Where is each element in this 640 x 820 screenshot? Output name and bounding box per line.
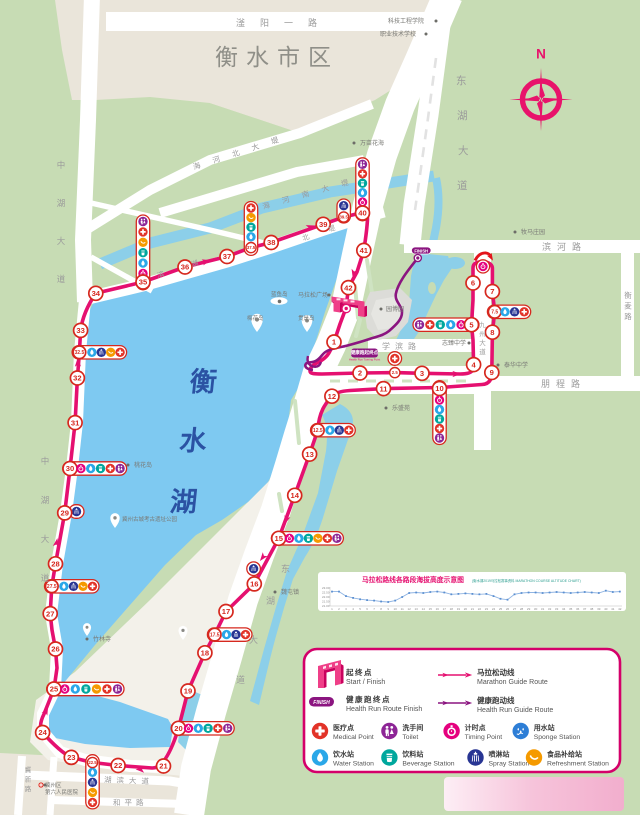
svg-text:州: 州	[479, 331, 486, 338]
svg-text:22.5: 22.5	[88, 760, 97, 765]
svg-text:14: 14	[422, 607, 426, 611]
svg-text:37.5: 37.5	[247, 245, 256, 250]
svg-text:麦: 麦	[624, 301, 632, 311]
svg-text:41: 41	[611, 607, 615, 611]
svg-text:22.00: 22.00	[322, 595, 330, 599]
svg-text:衡水市区: 衡水市区	[215, 44, 339, 70]
svg-text:3: 3	[420, 369, 424, 378]
svg-text:21: 21	[471, 607, 475, 611]
svg-text:牧马庄园: 牧马庄园	[521, 228, 545, 236]
svg-text:30: 30	[534, 607, 538, 611]
svg-text:10: 10	[435, 384, 443, 393]
svg-text:11: 11	[401, 607, 404, 611]
svg-text:衡: 衡	[188, 366, 218, 397]
svg-text:28: 28	[520, 607, 524, 611]
svg-text:23.00: 23.00	[322, 586, 330, 590]
svg-text:Health Run Guide Route: Health Run Guide Route	[477, 707, 553, 714]
svg-text:23: 23	[67, 753, 75, 762]
svg-text:17: 17	[443, 607, 447, 611]
svg-text:泰华中学: 泰华中学	[504, 361, 528, 369]
svg-text:40: 40	[604, 607, 608, 611]
svg-text:15: 15	[429, 607, 433, 611]
svg-text:34: 34	[562, 607, 566, 611]
svg-text:道: 道	[457, 179, 468, 192]
svg-text:29: 29	[527, 607, 531, 611]
svg-text:湖: 湖	[41, 495, 50, 505]
svg-text:32: 32	[73, 374, 81, 383]
svg-text:26: 26	[506, 607, 510, 611]
svg-text:38: 38	[267, 238, 275, 247]
svg-text:中: 中	[41, 456, 50, 466]
svg-text:滨河路: 滨河路	[542, 241, 587, 252]
svg-text:道: 道	[57, 274, 66, 284]
svg-text:31: 31	[541, 607, 545, 611]
svg-text:起终点: 起终点	[345, 667, 373, 677]
svg-text:新: 新	[25, 775, 32, 784]
svg-text:FINISH: FINISH	[313, 700, 330, 706]
svg-text:19: 19	[457, 607, 461, 611]
svg-text:22.50: 22.50	[322, 591, 330, 595]
svg-text:食品补给站: 食品补给站	[546, 750, 582, 759]
svg-text:贯是岛: 贯是岛	[298, 314, 315, 322]
svg-text:39: 39	[319, 220, 327, 229]
svg-text:18: 18	[450, 607, 454, 611]
svg-text:竹林寺: 竹林寺	[93, 635, 111, 643]
svg-text:37: 37	[223, 252, 231, 261]
svg-text:24: 24	[38, 728, 47, 737]
svg-text:10: 10	[394, 607, 398, 611]
svg-text:42: 42	[344, 283, 352, 292]
svg-text:25: 25	[499, 607, 503, 611]
svg-text:35: 35	[569, 607, 573, 611]
svg-text:12: 12	[328, 392, 336, 401]
svg-text:马拉松动线: 马拉松动线	[477, 667, 515, 677]
svg-text:中: 中	[57, 160, 66, 170]
svg-text:FINISH: FINISH	[414, 248, 428, 253]
svg-text:喷淋站: 喷淋站	[489, 750, 510, 759]
svg-text:大: 大	[57, 236, 66, 246]
svg-text:东: 东	[281, 563, 290, 574]
svg-text:Sponge Station: Sponge Station	[534, 734, 581, 741]
svg-text:饮料站: 饮料站	[401, 750, 423, 759]
svg-text:33: 33	[76, 326, 84, 335]
svg-text:11: 11	[379, 384, 388, 393]
svg-text:41: 41	[360, 246, 369, 255]
svg-text:湖: 湖	[457, 110, 468, 122]
svg-text:朋程路: 朋程路	[541, 378, 586, 389]
svg-text:健康跑起终点: 健康跑起终点	[351, 349, 379, 356]
svg-text:8: 8	[490, 328, 494, 337]
svg-text:Beverage Station: Beverage Station	[402, 761, 454, 768]
svg-text:25: 25	[50, 685, 59, 694]
svg-text:Water Station: Water Station	[333, 761, 374, 768]
svg-text:冀: 冀	[25, 765, 32, 774]
svg-text:18: 18	[201, 649, 209, 658]
svg-text:Spray Station: Spray Station	[489, 761, 530, 768]
svg-text:14: 14	[290, 491, 299, 500]
svg-text:Toilet: Toilet	[402, 734, 418, 741]
svg-text:路: 路	[25, 784, 32, 793]
svg-text:39: 39	[597, 607, 601, 611]
svg-text:34: 34	[92, 289, 101, 298]
svg-text:大: 大	[458, 144, 469, 157]
svg-text:22: 22	[478, 607, 482, 611]
svg-text:东: 东	[456, 74, 467, 87]
svg-text:志臻中学: 志臻中学	[442, 339, 466, 347]
svg-text:和平路: 和平路	[113, 797, 148, 807]
svg-text:万亩花海: 万亩花海	[360, 139, 384, 147]
svg-text:36: 36	[576, 607, 580, 611]
svg-text:Marathon Guide Route: Marathon Guide Route	[477, 679, 548, 686]
svg-text:35: 35	[139, 278, 148, 287]
svg-text:Refreshment Station: Refreshment Station	[547, 761, 609, 768]
svg-text:大: 大	[41, 534, 50, 544]
svg-text:冀州古城考古遗址公园: 冀州古城考古遗址公园	[122, 515, 178, 523]
svg-text:九: 九	[479, 320, 486, 329]
svg-text:Start / Finish: Start / Finish	[346, 679, 385, 686]
svg-text:2: 2	[358, 369, 362, 378]
svg-text:16: 16	[250, 580, 258, 589]
svg-text:大: 大	[249, 634, 258, 645]
svg-text:健康跑动线: 健康跑动线	[477, 695, 515, 705]
svg-text:第六人民医院: 第六人民医院	[45, 788, 79, 796]
svg-text:28: 28	[51, 560, 59, 569]
svg-text:21.50: 21.50	[322, 600, 330, 604]
svg-text:洗手间: 洗手间	[402, 723, 423, 732]
svg-text:30: 30	[66, 464, 74, 473]
svg-text:蓝鱼岛: 蓝鱼岛	[271, 290, 288, 298]
svg-text:Health Run Route Finish: Health Run Route Finish	[346, 706, 422, 713]
svg-text:6: 6	[471, 279, 475, 288]
svg-text:40: 40	[358, 209, 366, 218]
svg-text:路: 路	[624, 311, 632, 321]
svg-text:湖: 湖	[57, 198, 66, 208]
svg-text:21.00: 21.00	[322, 604, 330, 608]
svg-text:湖: 湖	[169, 486, 199, 517]
svg-text:健康跑终点: 健康跑终点	[346, 694, 391, 704]
svg-text:湖: 湖	[266, 596, 275, 606]
svg-text:梅花岛: 梅花岛	[247, 314, 264, 322]
svg-text:科技工程学院: 科技工程学院	[388, 17, 424, 25]
svg-text:桃花岛: 桃花岛	[134, 461, 152, 469]
svg-text:26: 26	[51, 645, 59, 654]
svg-text:20: 20	[464, 607, 468, 611]
svg-text:道: 道	[236, 674, 245, 685]
svg-text:27: 27	[46, 609, 54, 618]
svg-text:马拉松广场: 马拉松广场	[298, 291, 328, 299]
svg-text:23: 23	[485, 607, 489, 611]
svg-text:37: 37	[583, 607, 587, 611]
svg-text:马拉松路线各路段海拔高度示意图: 马拉松路线各路段海拔高度示意图	[362, 575, 464, 584]
svg-text:湖滨大道: 湖滨大道	[104, 774, 154, 786]
svg-text:道: 道	[41, 573, 50, 583]
svg-text:滏阳一路: 滏阳一路	[236, 17, 332, 28]
svg-text:园博园: 园博园	[386, 305, 404, 313]
svg-text:27: 27	[513, 607, 517, 611]
svg-text:39.5: 39.5	[340, 215, 349, 220]
svg-text:22: 22	[114, 761, 122, 770]
svg-text:饮水站: 饮水站	[332, 750, 354, 759]
svg-text:31: 31	[71, 418, 80, 427]
svg-text:计时点: 计时点	[465, 723, 486, 732]
svg-text:38: 38	[590, 607, 594, 611]
svg-text:N: N	[536, 47, 546, 62]
svg-text:乐盛苑: 乐盛苑	[392, 404, 410, 412]
svg-text:道: 道	[479, 347, 486, 356]
svg-text:冀州区: 冀州区	[45, 781, 62, 789]
svg-text:12.5: 12.5	[313, 428, 323, 434]
svg-text:17: 17	[222, 607, 230, 616]
svg-text:Health Run Turning Point: Health Run Turning Point	[349, 358, 380, 362]
svg-text:36: 36	[181, 263, 189, 272]
svg-text:2.5: 2.5	[392, 370, 399, 375]
svg-text:16: 16	[436, 607, 440, 611]
svg-text:Timing Point: Timing Point	[465, 734, 503, 741]
svg-text:Medical Point: Medical Point	[333, 734, 374, 741]
svg-text:职业技术学校: 职业技术学校	[380, 30, 416, 38]
svg-text:用水站: 用水站	[534, 723, 555, 732]
svg-text:32.5: 32.5	[75, 350, 85, 356]
svg-text:27.5: 27.5	[47, 584, 57, 590]
svg-text:7: 7	[490, 287, 494, 296]
svg-text:17.5: 17.5	[210, 632, 220, 638]
svg-text:19: 19	[184, 687, 192, 696]
svg-text:21: 21	[159, 762, 168, 771]
svg-text:大: 大	[479, 338, 486, 347]
svg-text:33: 33	[555, 607, 559, 611]
svg-text:医疗点: 医疗点	[333, 723, 354, 732]
svg-text:衡: 衡	[624, 290, 632, 300]
svg-text:水: 水	[178, 425, 209, 456]
svg-text:32: 32	[548, 607, 552, 611]
svg-text:13: 13	[415, 607, 419, 611]
svg-text:15: 15	[274, 534, 283, 543]
svg-text:24: 24	[492, 607, 496, 611]
svg-text:7.5: 7.5	[491, 310, 498, 316]
svg-text:13: 13	[305, 450, 313, 459]
svg-text:12: 12	[408, 607, 412, 611]
svg-text:学滨路: 学滨路	[382, 341, 421, 351]
svg-text:(衡水湖2019马拉松赛事资料 MARATHON COURS: (衡水湖2019马拉松赛事资料 MARATHON COURSE ALTITUDE…	[472, 578, 581, 583]
svg-text:42: 42	[618, 607, 622, 611]
svg-text:29: 29	[60, 509, 68, 518]
svg-text:20: 20	[174, 724, 182, 733]
svg-text:魏屯镇: 魏屯镇	[281, 588, 299, 596]
svg-text:9: 9	[490, 368, 494, 377]
